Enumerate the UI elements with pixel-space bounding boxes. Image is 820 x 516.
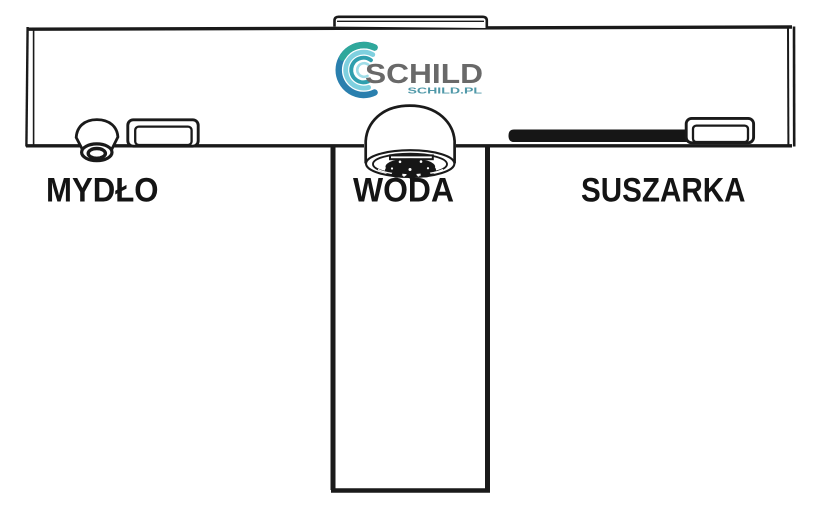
svg-text:SCHILD: SCHILD	[365, 58, 483, 89]
svg-text:MYDŁO: MYDŁO	[46, 171, 159, 209]
svg-text:SUSZARKA: SUSZARKA	[581, 171, 746, 209]
svg-text:SCHILD.PL: SCHILD.PL	[408, 87, 483, 96]
svg-text:WODA: WODA	[353, 171, 454, 209]
